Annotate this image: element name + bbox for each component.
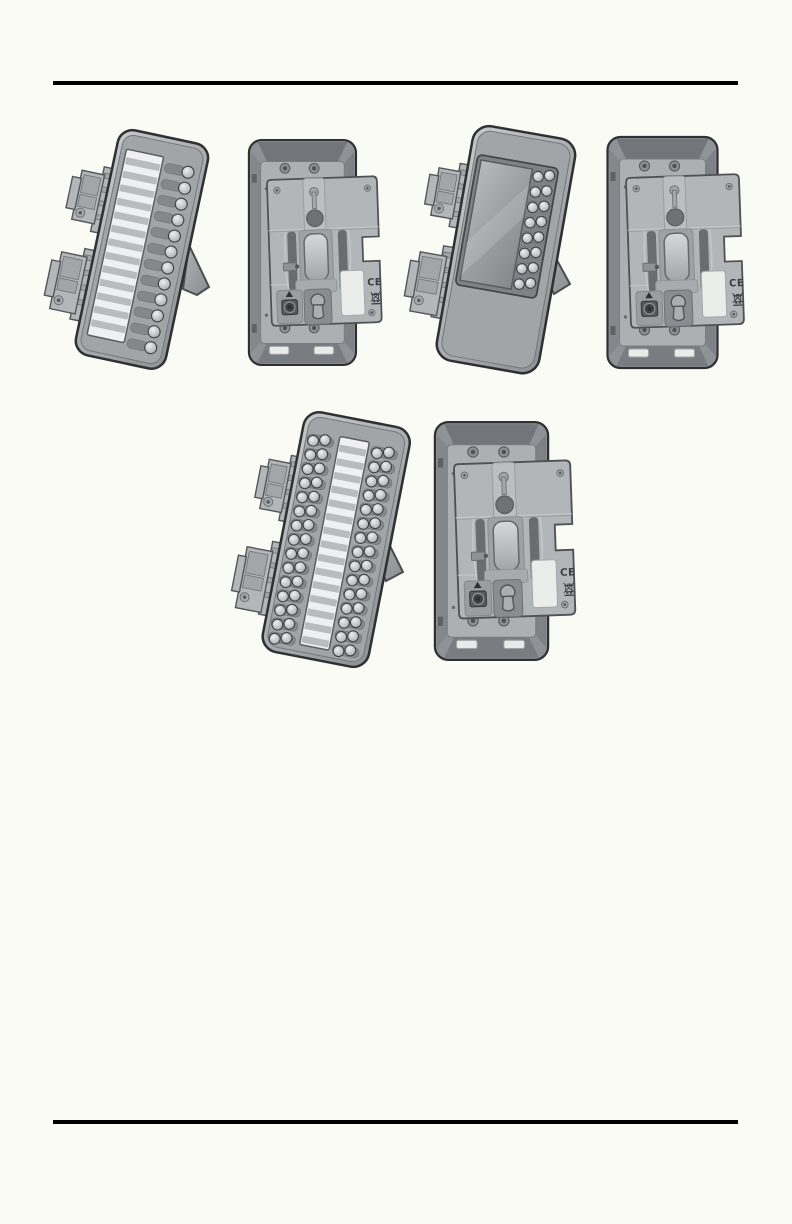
figure-key-module-back xyxy=(246,133,392,372)
figure-dual-column-module-back xyxy=(431,417,587,665)
document-page: CE xyxy=(0,0,792,1224)
figure-dual-column-module-front xyxy=(236,404,420,676)
figure-display-module-back xyxy=(601,132,758,373)
figure-key-module-front xyxy=(40,118,240,380)
bottom-rule xyxy=(53,1120,738,1124)
top-rule xyxy=(53,81,738,85)
figure-display-module-front xyxy=(402,116,602,382)
